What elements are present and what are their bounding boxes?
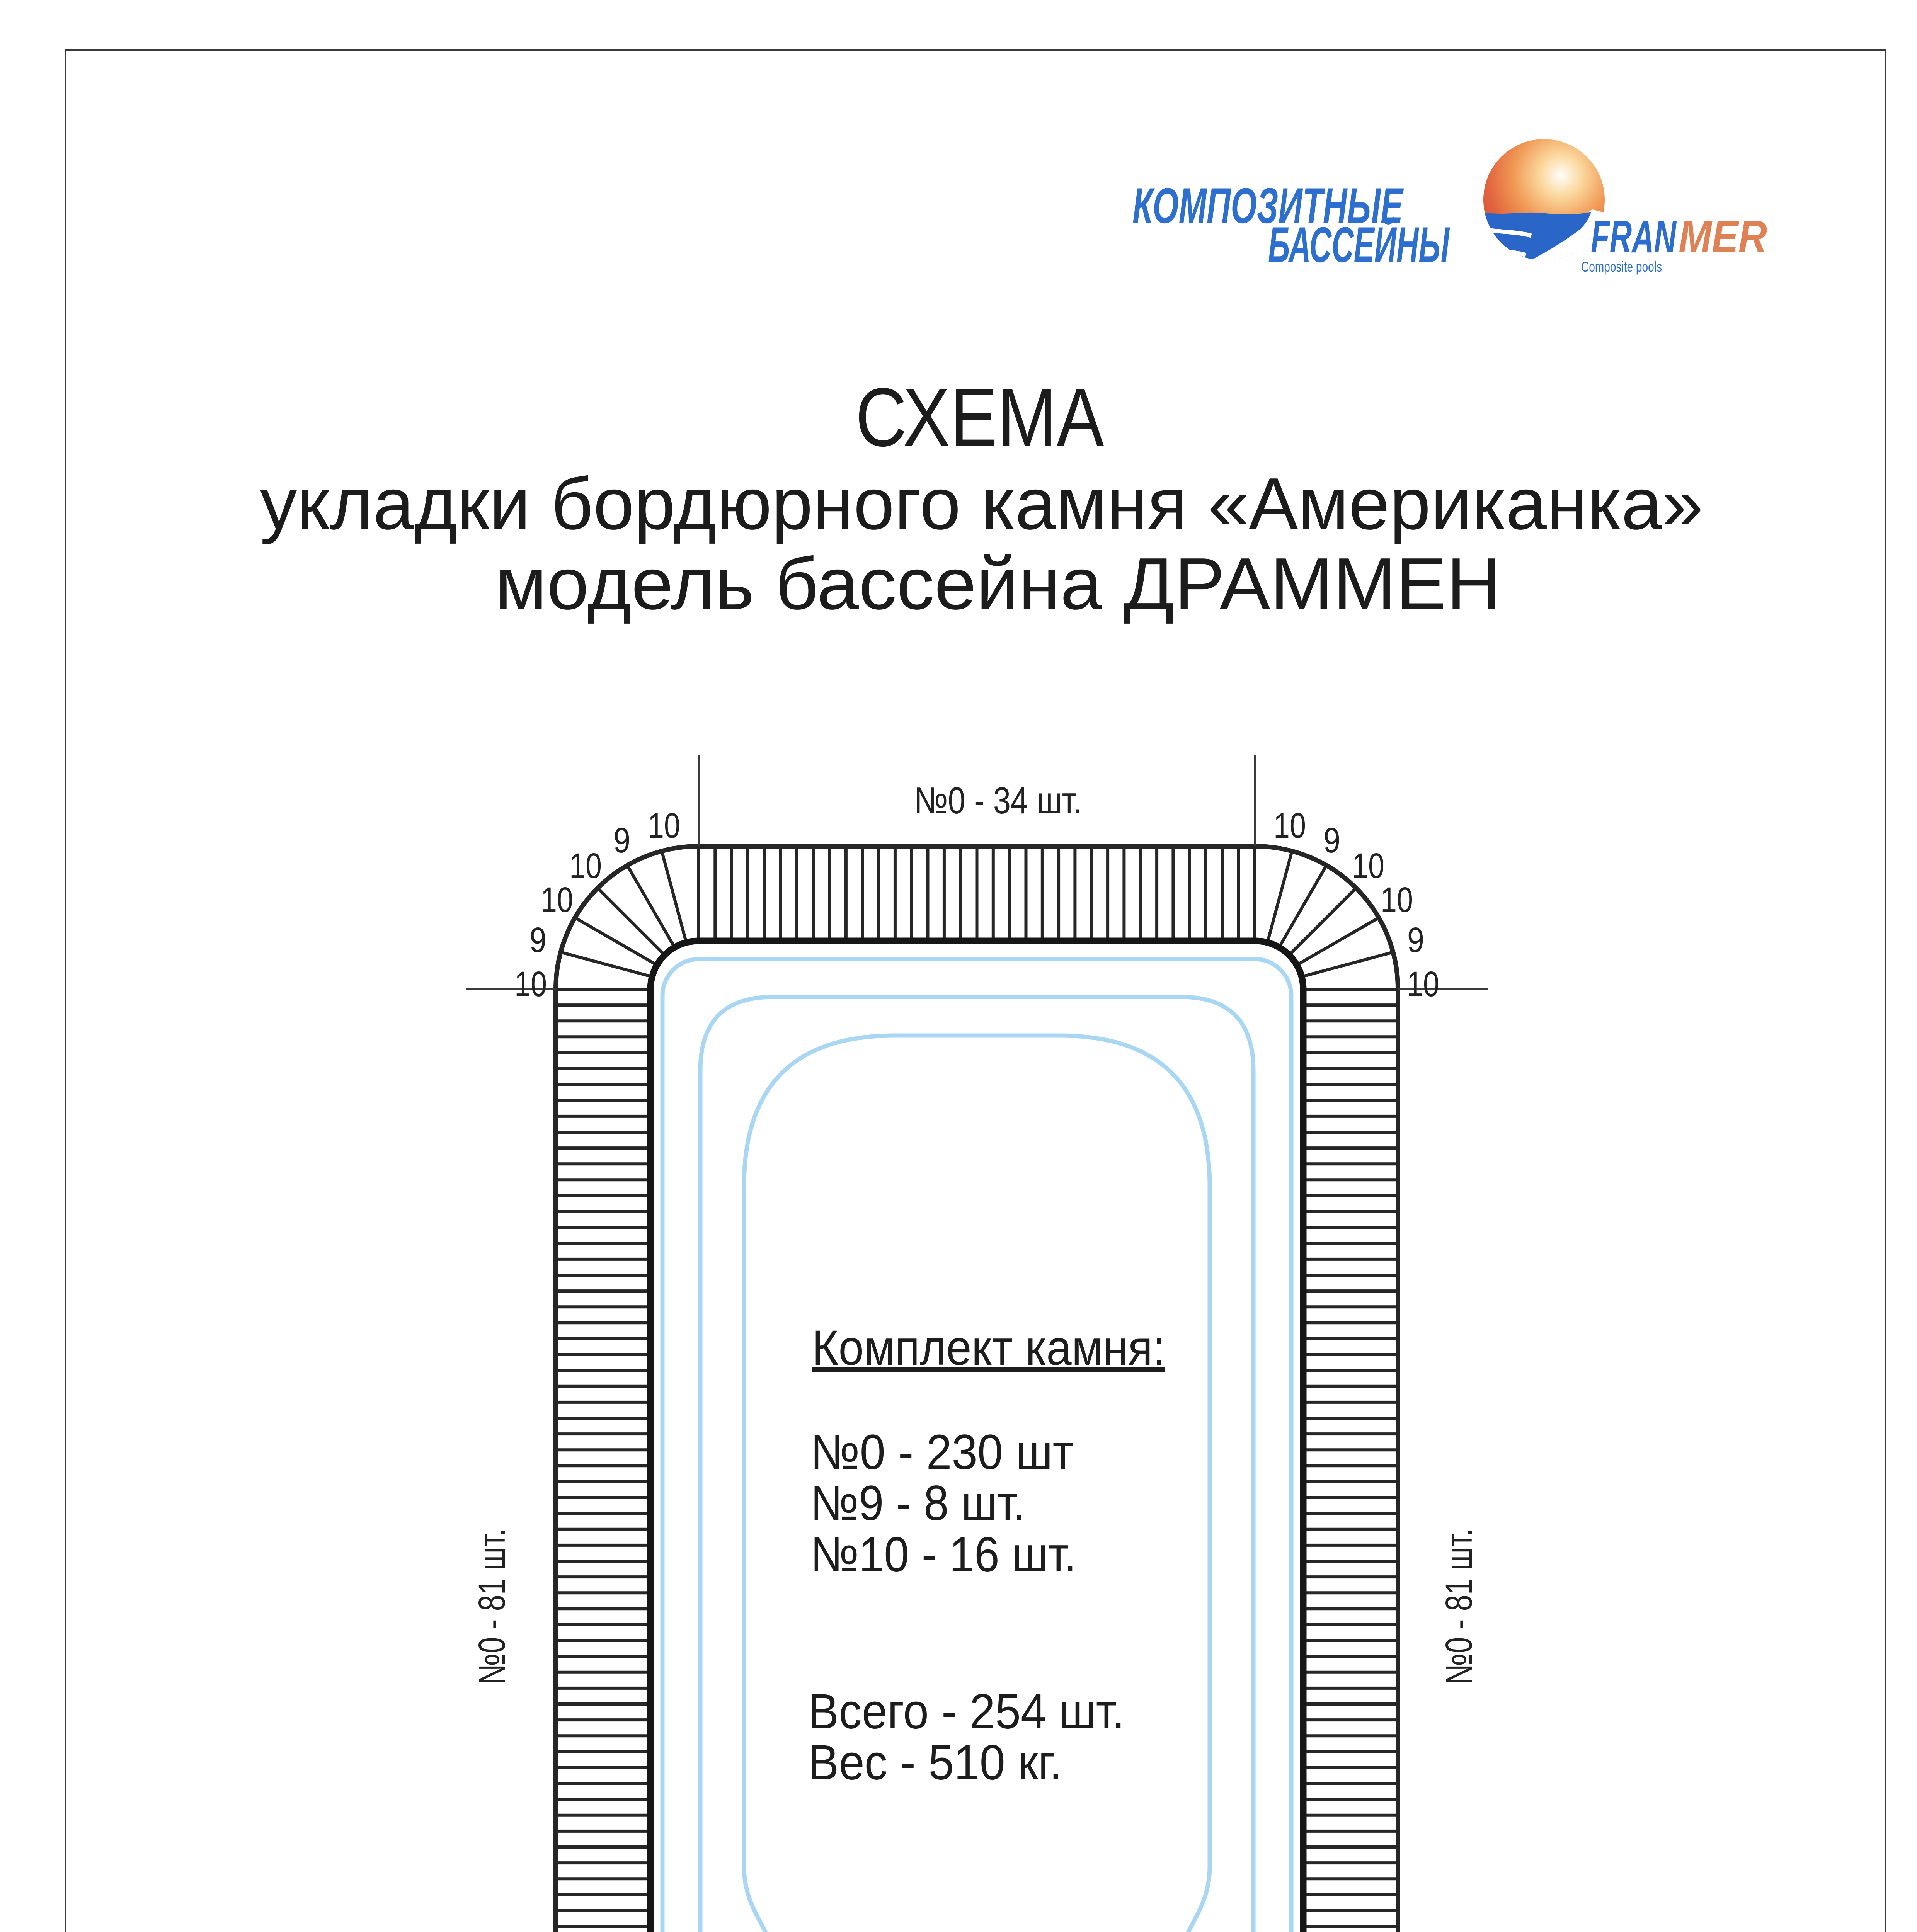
svg-text:Всего - 254 шт.: Всего - 254 шт. [808, 1684, 1125, 1739]
svg-text:10: 10 [1381, 880, 1413, 920]
svg-text:9: 9 [529, 920, 546, 960]
svg-text:10: 10 [648, 806, 680, 845]
svg-text:10: 10 [1352, 846, 1384, 886]
svg-text:9: 9 [1323, 821, 1340, 860]
svg-text:Комплект камня:: Комплект камня: [812, 1320, 1165, 1376]
svg-text:10: 10 [1273, 806, 1306, 845]
svg-text:9: 9 [1407, 920, 1424, 960]
svg-text:№0 - 81 шт.: №0 - 81 шт. [1438, 1529, 1480, 1685]
svg-text:FRAN: FRAN [1591, 211, 1677, 262]
svg-text:9: 9 [613, 821, 630, 860]
svg-text:БАССЕЙНЫ: БАССЕЙНЫ [1268, 216, 1450, 273]
svg-text:Composite pools: Composite pools [1581, 259, 1662, 275]
svg-text:модель бассейна ДРАММЕН: модель бассейна ДРАММЕН [495, 543, 1501, 625]
svg-text:№9 - 8 шт.: №9 - 8 шт. [810, 1476, 1025, 1531]
svg-text:№10 - 16 шт.: №10 - 16 шт. [810, 1527, 1076, 1582]
svg-text:10: 10 [514, 964, 547, 1004]
svg-text:№0 - 230 шт: №0 - 230 шт [810, 1425, 1074, 1480]
svg-text:№0 - 81 шт.: №0 - 81 шт. [471, 1529, 513, 1685]
svg-text:MER: MER [1679, 211, 1767, 262]
svg-text:10: 10 [541, 880, 573, 920]
svg-text:10: 10 [569, 846, 602, 886]
svg-text:Вес - 510 кг.: Вес - 510 кг. [808, 1735, 1062, 1790]
svg-text:укладки бордюрного камня «Амер: укладки бордюрного камня «Американка» [260, 463, 1703, 545]
svg-text:№0 - 34 шт.: №0 - 34 шт. [914, 779, 1082, 821]
svg-text:СХЕМА: СХЕМА [856, 371, 1104, 464]
svg-text:10: 10 [1407, 964, 1439, 1004]
